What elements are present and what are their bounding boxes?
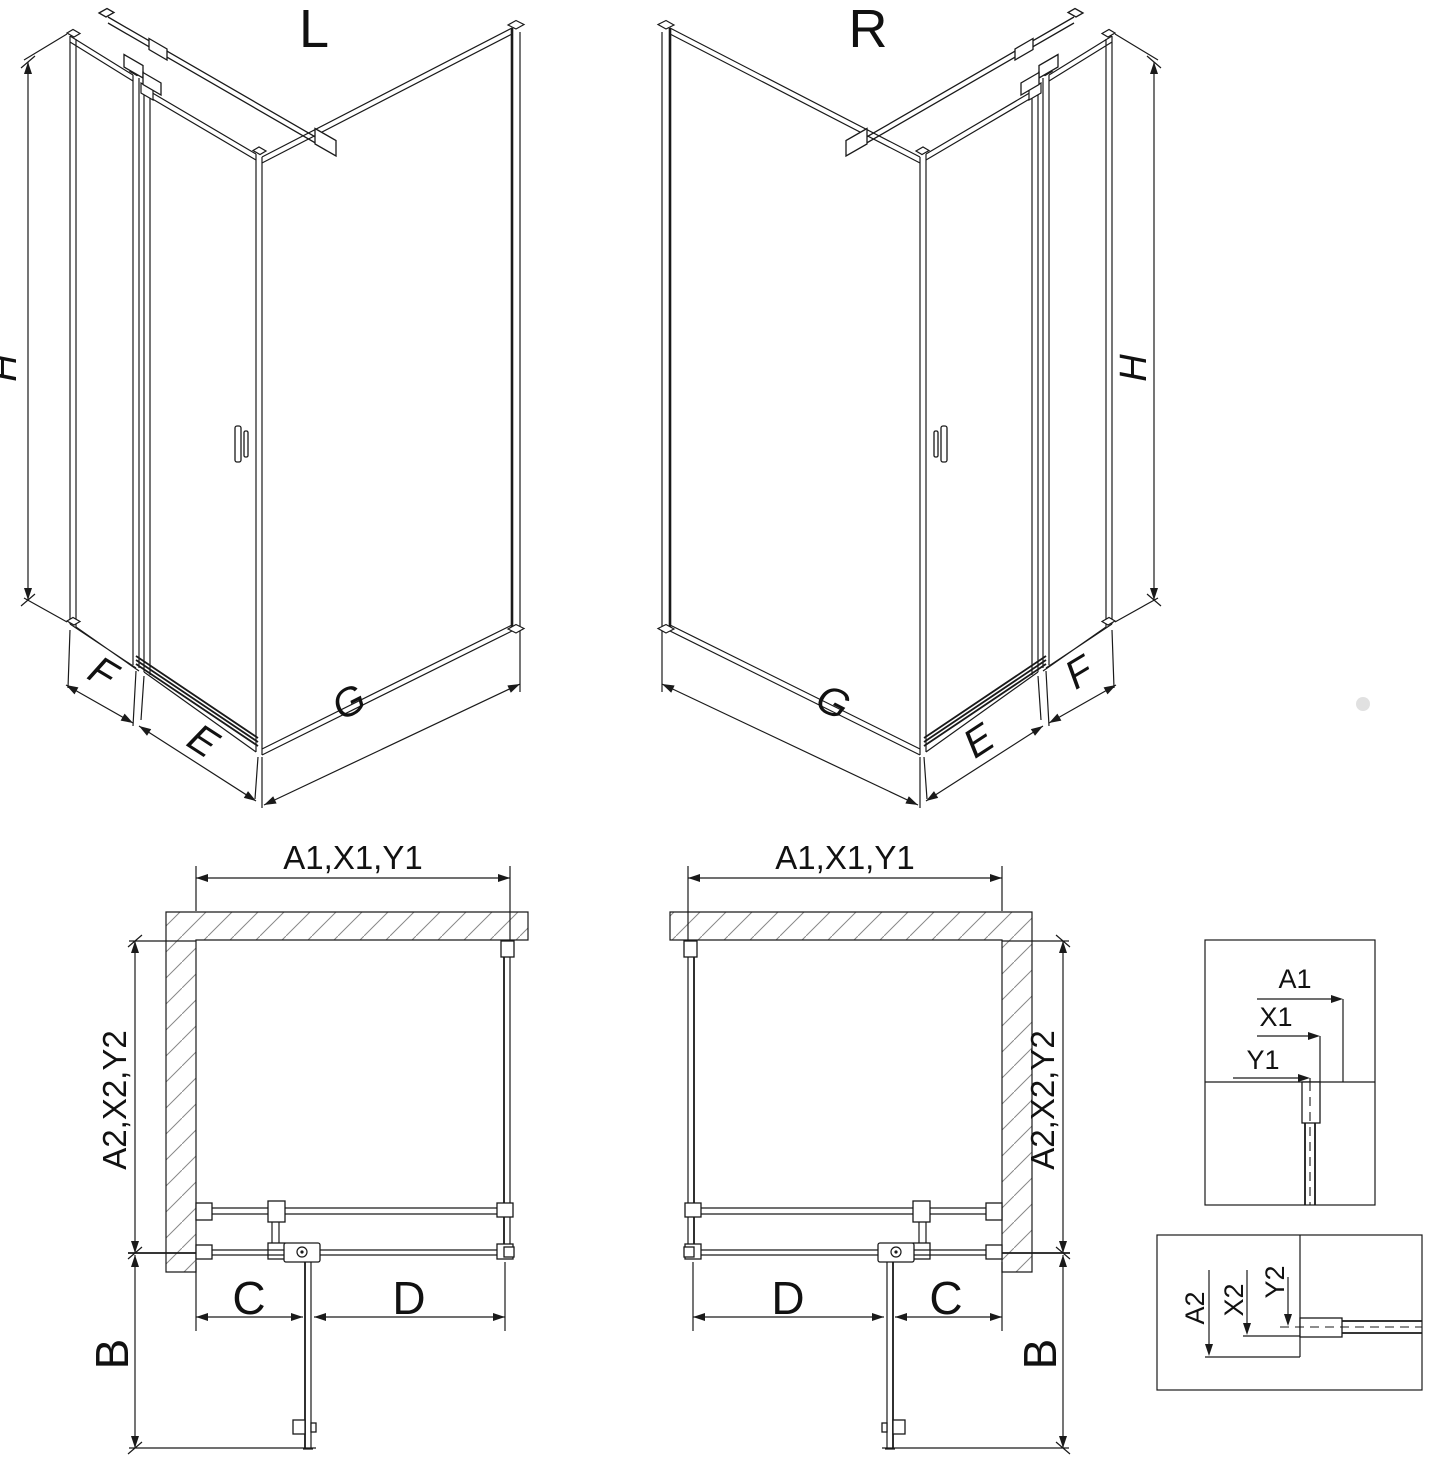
detail-x2-label: X2 xyxy=(1219,1283,1249,1316)
plan-depth-label-left: A2,X2,Y2 xyxy=(96,1030,133,1169)
dimension-label-b-right: B xyxy=(1014,1339,1066,1370)
detail-x1-label: X1 xyxy=(1259,1002,1292,1032)
detail-y2-label: Y2 xyxy=(1260,1265,1290,1298)
watermark-dot xyxy=(1356,697,1370,711)
dimension-label-d-right: D xyxy=(771,1272,804,1324)
dimension-label-g-left: G xyxy=(325,676,373,729)
plan-view-left: A1,X1,Y1 A2,X2,Y2 C D B xyxy=(86,839,528,1454)
wall-section-left xyxy=(166,912,528,1272)
plan-width-label-right: A1,X1,Y1 xyxy=(775,839,914,876)
dimension-label-b-left: B xyxy=(86,1339,138,1370)
detail-a1-label: A1 xyxy=(1278,964,1311,994)
dimension-label-e-right: E xyxy=(956,715,1003,767)
plan-view-right: A1,X1,Y1 A2,X2,Y2 D C B xyxy=(670,839,1070,1454)
drawing-canvas: L H F E G R H F E G A1,X1,Y1 A2,X2,Y2 C … xyxy=(0,0,1430,1460)
dimension-label-e-left: E xyxy=(180,715,227,767)
dimension-label-h-right: H xyxy=(1113,354,1155,382)
dimension-label-f-left: F xyxy=(81,648,127,700)
dimension-label-g-right: G xyxy=(809,676,857,729)
dimension-label-h-left: H xyxy=(0,354,25,382)
dimension-label-d-left: D xyxy=(392,1272,425,1324)
detail-box-bottom: A2 X2 Y2 xyxy=(1157,1235,1422,1390)
detail-y1-label: Y1 xyxy=(1246,1045,1279,1075)
iso-view-left: L H F E G xyxy=(0,0,524,808)
iso-view-right: R H F E G xyxy=(658,0,1161,808)
iso-left-title: L xyxy=(299,0,329,59)
iso-right-title: R xyxy=(849,0,888,59)
dimension-label-c-left: C xyxy=(232,1272,265,1324)
detail-a2-label: A2 xyxy=(1180,1291,1210,1324)
plan-depth-label-right: A2,X2,Y2 xyxy=(1024,1030,1061,1169)
detail-box-top: A1 X1 Y1 xyxy=(1205,940,1375,1205)
plan-width-label-left: A1,X1,Y1 xyxy=(283,839,422,876)
dimension-label-f-right: F xyxy=(1058,646,1104,698)
dimension-label-c-right: C xyxy=(929,1272,962,1324)
wall-section-right xyxy=(670,912,1032,1272)
